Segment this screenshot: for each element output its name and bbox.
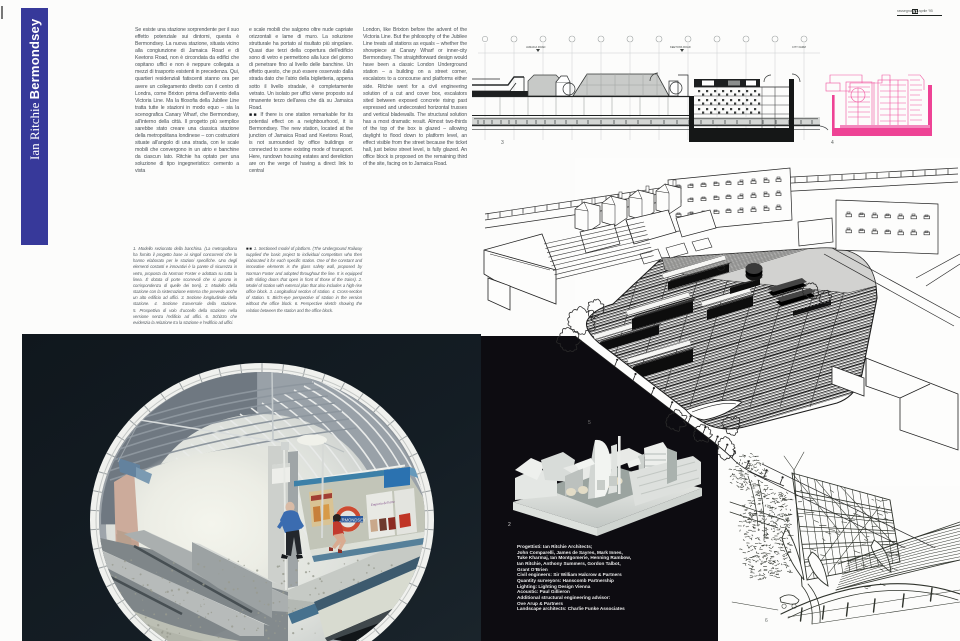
svg-text:4: 4 — [831, 140, 834, 146]
svg-text:6: 6 — [765, 618, 768, 624]
svg-text:KEETONS ROAD: KEETONS ROAD — [670, 45, 691, 49]
svg-text:5: 5 — [588, 420, 591, 426]
svg-text:3: 3 — [501, 140, 504, 146]
svg-text:CITY FARM: CITY FARM — [792, 45, 806, 49]
svg-text:JAMAICA ROAD: JAMAICA ROAD — [526, 45, 545, 49]
